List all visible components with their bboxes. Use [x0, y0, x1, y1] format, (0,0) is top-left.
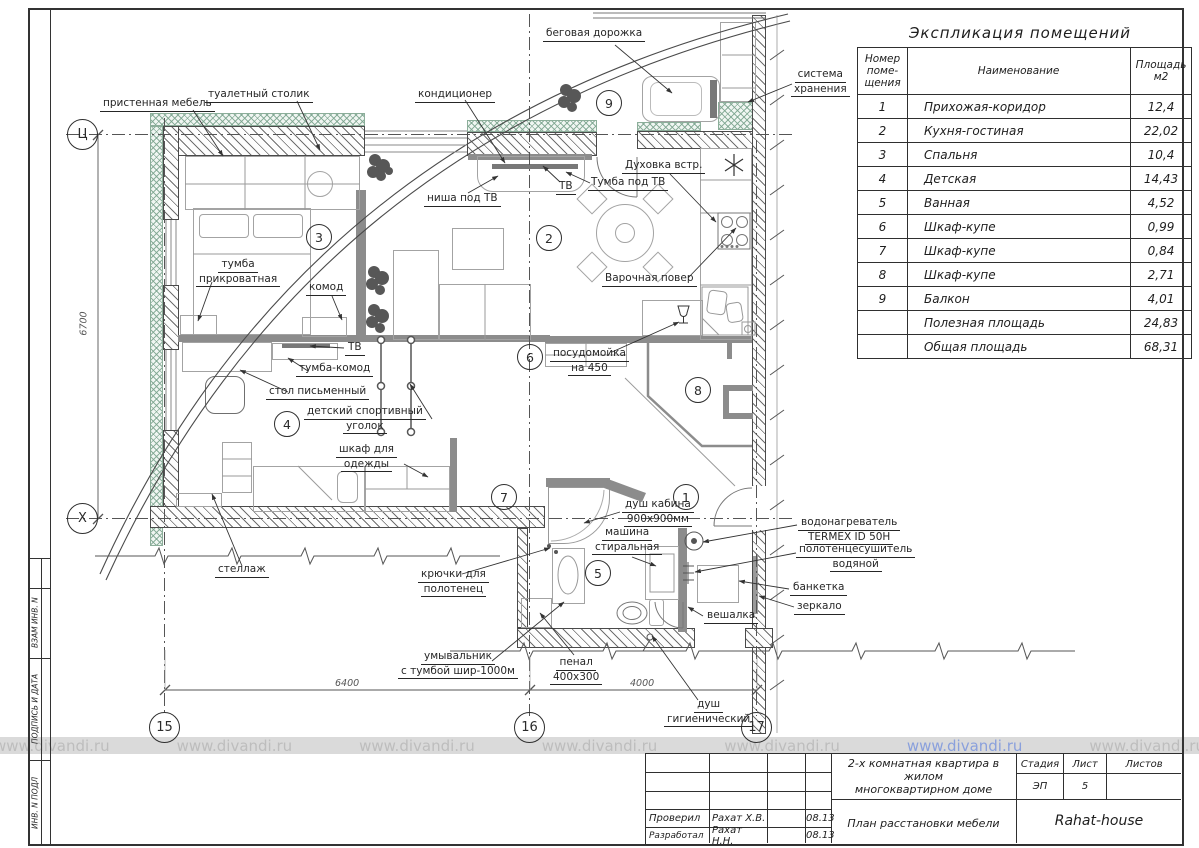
- pillow-2: [253, 214, 303, 238]
- cell-area: 4,01: [1131, 287, 1192, 311]
- peninsula-leg: [727, 343, 732, 359]
- sidebar-cell-inv: ИНВ. N ПОДЛ: [29, 761, 41, 844]
- label-line: одежды: [341, 458, 392, 473]
- treadmill-console: [710, 80, 717, 118]
- wall-bath-right: [678, 528, 687, 632]
- cell-num: 3: [858, 143, 908, 167]
- label-shkaf-dlya-odezhdy: шкаф дляодежды: [336, 443, 397, 472]
- col-header-name: Наименование: [908, 48, 1131, 95]
- cell-area: 10,4: [1131, 143, 1192, 167]
- sheets-value: [1107, 775, 1181, 797]
- label-line: тумба-комод: [296, 362, 373, 377]
- tv-living: [492, 164, 578, 169]
- watermark-band: www.divandi.ru www.divandi.ru www.divand…: [0, 737, 1199, 754]
- cell-num: 9: [858, 287, 908, 311]
- label-line: полотенец: [421, 583, 486, 598]
- dining-table-center: [615, 223, 635, 243]
- table-row: 4Детская14,43: [858, 167, 1192, 191]
- label-line: стеллаж: [215, 563, 269, 578]
- cell-name: Полезная площадь: [908, 311, 1131, 335]
- pillow-1: [199, 214, 249, 238]
- axis-line-c: [66, 134, 792, 135]
- stool: [307, 171, 333, 197]
- cell-area: 14,43: [1131, 167, 1192, 191]
- label-line: ниша под ТВ: [424, 192, 501, 207]
- water-heater: [685, 532, 703, 550]
- axis-marker-15: 15: [149, 712, 180, 743]
- label-tumba-komod: тумба-комод: [296, 362, 373, 377]
- label-banketka: банкетка: [790, 581, 847, 596]
- sofa-seat: [439, 284, 531, 340]
- label-line: детский спортивный: [304, 405, 426, 420]
- cell-name: Детская: [908, 167, 1131, 191]
- wall-insulation-ac: [467, 120, 597, 132]
- frame-left-inner: [50, 8, 51, 846]
- cell-name: Шкаф-купе: [908, 263, 1131, 287]
- kitchen-counter: [700, 148, 752, 340]
- label-line: ТВ: [556, 180, 576, 195]
- label-line: машина: [602, 526, 652, 541]
- label-line: умывальник: [421, 650, 495, 665]
- table-row: 5Ванная4,52: [858, 191, 1192, 215]
- col-header-number: Номер поме- щения: [858, 48, 908, 95]
- label-line: полотенцесушитель: [796, 543, 915, 558]
- axis-line-17: [756, 140, 757, 716]
- dim-6400: 6400: [335, 678, 359, 689]
- washbasin-cabinet: [552, 548, 585, 604]
- watermark-text: www.divandi.ru: [542, 737, 658, 754]
- label-tv-top: ТВ: [556, 180, 576, 195]
- label-line: водяной: [830, 558, 882, 573]
- label-line: уголок: [343, 420, 387, 435]
- label-line: туалетный столик: [205, 88, 313, 103]
- sidebar-row-line: [28, 558, 50, 559]
- cell-name: Шкаф-купе: [908, 239, 1131, 263]
- cell-area: 12,4: [1131, 95, 1192, 119]
- table-row: 6Шкаф-купе0,99: [858, 215, 1192, 239]
- developed-label: Разработал: [649, 828, 707, 843]
- label-sistema-hraneniya: системахранения: [791, 68, 850, 97]
- table-row: Общая площадь68,31: [858, 335, 1192, 359]
- cell-name: Прихожая-коридор: [908, 95, 1131, 119]
- storage-cabinet: [720, 22, 756, 102]
- label-tualetny-stolik: туалетный столик: [205, 88, 313, 103]
- cell-name: Общая площадь: [908, 335, 1131, 359]
- table-row: 3Спальня10,4: [858, 143, 1192, 167]
- entrance-opening: [752, 486, 766, 530]
- bench: [697, 565, 739, 603]
- room-marker-6: 6: [517, 344, 543, 370]
- wardrobe-7: [365, 466, 450, 512]
- label-dush-gigienichesky: душгигиенический: [664, 698, 753, 727]
- explication-title: Экспликация помещений: [857, 24, 1183, 42]
- doc-title: План расстановки мебели: [834, 804, 1013, 842]
- wall-left-pier1: [163, 126, 179, 220]
- project-name: 2-х комнатная квартира в жилом многоквар…: [834, 756, 1013, 797]
- pillow-kids: [337, 471, 358, 503]
- table-row: Полезная площадь24,83: [858, 311, 1192, 335]
- label-zerkalo: зеркало: [794, 600, 845, 615]
- treadmill-belt: [650, 82, 702, 116]
- label-line: пенал: [556, 656, 595, 671]
- shelf-tall: [222, 442, 252, 493]
- drawing-sheet: www.divandi.ru www.divandi.ru www.divand…: [0, 0, 1199, 848]
- room-marker-9: 9: [596, 90, 622, 116]
- label-tv-mid: ТВ: [345, 341, 365, 356]
- watermark-text: www.divandi.ru: [359, 737, 475, 754]
- toilet: [617, 602, 647, 624]
- wall-insulation-balcony: [637, 122, 701, 131]
- shelf-low: [176, 493, 222, 507]
- label-kryuchki: крючки дляполотенец: [418, 568, 489, 597]
- table-row: 8Шкаф-купе2,71: [858, 263, 1192, 287]
- label-line: прикроватная: [196, 273, 280, 288]
- cell-num: 1: [858, 95, 908, 119]
- label-tumba-pod-tv: Тумба под ТВ: [588, 176, 668, 191]
- checked-label: Проверил: [649, 810, 707, 826]
- label-line: душ: [694, 698, 723, 713]
- label-duhovka: Духовка встр.: [622, 159, 705, 174]
- cell-area: 24,83: [1131, 311, 1192, 335]
- label-veshalka: вешалка: [704, 609, 758, 624]
- watermark-text: www.divandi.ru: [907, 737, 1023, 754]
- wall-right: [752, 15, 766, 734]
- axis-marker-c: Ц: [67, 119, 98, 150]
- cell-num: 2: [858, 119, 908, 143]
- label-line: душ кабина: [622, 498, 694, 513]
- room-marker-8: 8: [685, 377, 711, 403]
- developed-date: 08.13: [806, 828, 831, 843]
- label-line: хранения: [791, 83, 850, 98]
- label-begovaya-dorozhka: беговая дорожка: [543, 27, 645, 42]
- brand-name: Rahat-house: [1017, 802, 1181, 840]
- label-line: с тумбой шир-1000м: [398, 665, 518, 680]
- room-marker-5: 5: [585, 560, 611, 586]
- balcony-glazing: [593, 13, 766, 18]
- cell-num: 8: [858, 263, 908, 287]
- table-row: 1Прихожая-коридор12,4: [858, 95, 1192, 119]
- cell-area: 4,52: [1131, 191, 1192, 215]
- partition-bedroom-living: [356, 190, 366, 338]
- cell-area: 22,02: [1131, 119, 1192, 143]
- label-dush-kabina: душ кабина900х900мм: [622, 498, 694, 527]
- watermark-text: www.divandi.ru: [0, 737, 110, 754]
- label-mashina-stiralnaya: машинастиральная: [592, 526, 662, 555]
- sheets-label: Листов: [1107, 756, 1181, 772]
- developed-name: Рахат Н.Н.: [712, 828, 766, 843]
- table-header-row: Номер поме- щения Наименование Площадь м…: [858, 48, 1192, 95]
- stage-label: Стадия: [1017, 756, 1063, 772]
- label-line: 400х300: [550, 671, 602, 686]
- label-pristennaya-mebel: пристенная мебель: [100, 97, 215, 112]
- label-komod: комод: [306, 281, 346, 296]
- cell-num: 5: [858, 191, 908, 215]
- label-line: комод: [306, 281, 346, 296]
- wall-ac: [467, 132, 597, 156]
- frame-top: [28, 8, 1184, 10]
- dresser-bedroom: [302, 317, 347, 337]
- label-posudomoika: посудомойкана 450: [550, 347, 629, 376]
- toilet-tank: [649, 599, 664, 626]
- sofa-back: [393, 250, 439, 340]
- label-tumba-prikrovatnaya: тумбаприкроватная: [196, 258, 280, 287]
- cell-area: 0,99: [1131, 215, 1192, 239]
- checked-date: 08.13: [806, 810, 831, 826]
- cell-num: [858, 335, 908, 359]
- axis-marker-16: 16: [514, 712, 545, 743]
- label-line: Варочная повер: [602, 272, 697, 287]
- label-line: водонагреватель: [798, 516, 900, 531]
- desk-chair: [205, 376, 245, 414]
- shower-top-bar: [546, 478, 610, 487]
- room-marker-3: 3: [306, 224, 332, 250]
- sidebar-divider: [41, 558, 42, 845]
- cell-num: 7: [858, 239, 908, 263]
- label-line: Духовка встр.: [622, 159, 705, 174]
- label-line: пристенная мебель: [100, 97, 215, 112]
- label-polotencesushitel: полотенцесушительводяной: [796, 543, 915, 572]
- explication-panel: Экспликация помещений Номер поме- щения …: [857, 24, 1183, 359]
- label-line: шкаф для: [336, 443, 397, 458]
- room-marker-2: 2: [536, 225, 562, 251]
- room-marker-7: 7: [491, 484, 517, 510]
- label-line: тумба: [218, 258, 257, 273]
- col-header-area: Площадь м2: [1131, 48, 1192, 95]
- label-line: стиральная: [592, 541, 662, 556]
- wall-insulation-left: [150, 126, 163, 546]
- axis-marker-x: Х: [67, 503, 98, 534]
- kitchen-counter2: [642, 300, 703, 336]
- axis-line-15: [164, 118, 165, 716]
- label-line: гигиенический: [664, 713, 753, 728]
- desk: [182, 342, 272, 372]
- cell-name: Балкон: [908, 287, 1131, 311]
- label-stol-pismenny: стол письменный: [266, 385, 369, 400]
- cell-area: 0,84: [1131, 239, 1192, 263]
- table-row: 7Шкаф-купе0,84: [858, 239, 1192, 263]
- sidebar-cell-vzam: ВЗАМ ИНВ. N: [29, 589, 41, 657]
- bedside-table: [180, 315, 217, 335]
- label-penal: пенал400х300: [550, 656, 602, 685]
- label-line: крючки для: [418, 568, 489, 583]
- label-line: зеркало: [794, 600, 845, 615]
- wall-bar-450: [450, 438, 457, 512]
- label-nisha-pod-tv: ниша под ТВ: [424, 192, 501, 207]
- cell-name: Шкаф-купе: [908, 215, 1131, 239]
- wall-cabinets: [185, 156, 360, 210]
- label-sport-ugolok: детский спортивныйуголок: [304, 405, 426, 434]
- label-line: на 450: [568, 362, 611, 377]
- label-line: кондиционер: [415, 88, 495, 103]
- sheet-value: 5: [1064, 775, 1106, 797]
- cell-num: [858, 311, 908, 335]
- label-line: стол письменный: [266, 385, 369, 400]
- label-line: ТВ: [345, 341, 365, 356]
- label-line: вешалка: [704, 609, 758, 624]
- label-line: Тумба под ТВ: [588, 176, 668, 191]
- wall-insulation-top: [150, 113, 365, 126]
- sidebar-cell-podpis: ПОДПИСЬ И ДАТА: [29, 659, 41, 759]
- watermark-text: www.divandi.ru: [724, 737, 840, 754]
- cell-name: Спальня: [908, 143, 1131, 167]
- section-line-ticks: [770, 15, 784, 733]
- wall-bath-bottom2: [745, 628, 773, 648]
- dim-6700: 6700: [79, 311, 90, 335]
- cell-num: 6: [858, 215, 908, 239]
- cell-area: 2,71: [1131, 263, 1192, 287]
- stage-value: ЭП: [1017, 775, 1063, 797]
- penal-cabinet: [521, 598, 552, 628]
- label-stellazh: стеллаж: [215, 563, 269, 578]
- explication-table: Номер поме- щения Наименование Площадь м…: [857, 47, 1192, 359]
- tv-kids: [282, 344, 330, 348]
- wall-bath-bottom: [517, 628, 695, 648]
- cell-area: 68,31: [1131, 335, 1192, 359]
- wall-top: [150, 126, 365, 156]
- dim-4000: 4000: [630, 678, 654, 689]
- cell-name: Кухня-гостиная: [908, 119, 1131, 143]
- label-vodonagrevatel: водонагревательTERMEX ID 50H: [798, 516, 900, 545]
- watermark-text: www.divandi.ru: [177, 737, 293, 754]
- closet-8: [625, 342, 753, 486]
- cell-name: Ванная: [908, 191, 1131, 215]
- sheet-label: Лист: [1064, 756, 1106, 772]
- label-umyvalnik: умывальникс тумбой шир-1000м: [398, 650, 518, 679]
- label-line: беговая дорожка: [543, 27, 645, 42]
- table-row: 9Балкон4,01: [858, 287, 1192, 311]
- coffee-table: [452, 228, 504, 270]
- title-block: Проверил Рахат Х.В. 08.13 Разработал Рах…: [645, 753, 1183, 845]
- room-marker-4: 4: [274, 411, 300, 437]
- wall-left-pier2: [163, 285, 179, 350]
- label-kondicioner: кондиционер: [415, 88, 495, 103]
- cell-num: 4: [858, 167, 908, 191]
- table-row: 2Кухня-гостиная22,02: [858, 119, 1192, 143]
- label-line: посудомойка: [550, 347, 629, 362]
- label-varochnaya: Варочная повер: [602, 272, 697, 287]
- label-line: банкетка: [790, 581, 847, 596]
- label-line: система: [795, 68, 846, 83]
